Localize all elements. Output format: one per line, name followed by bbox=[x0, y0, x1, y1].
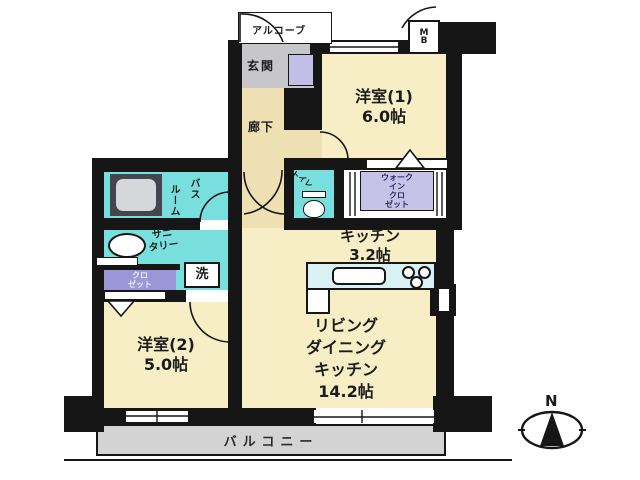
wall-right-upper bbox=[446, 40, 462, 230]
floor-plan: 洋室(1) 6.0帖 ウォーク イン クロ ゼット クロ ゼット 洋室(2) 5… bbox=[0, 0, 640, 480]
closet-line1: クロ bbox=[132, 271, 148, 280]
doorway-room2 bbox=[186, 290, 228, 302]
window-room1-top bbox=[330, 42, 398, 52]
room-western1: 洋室(1) 6.0帖 bbox=[322, 54, 446, 160]
walk-in-closet: ウォーク イン クロ ゼット bbox=[360, 171, 434, 211]
wic-line4: ゼット bbox=[385, 200, 409, 209]
kitchen-counter-return bbox=[306, 288, 330, 314]
bathtub-inner bbox=[116, 179, 156, 211]
alcove-label: アルコーブ bbox=[252, 22, 306, 37]
ldk-line4: 14.2帖 bbox=[318, 381, 373, 403]
pillar-bottom-right bbox=[433, 396, 492, 432]
balcony-floor: バルコニー bbox=[96, 424, 446, 456]
wall-left-column bbox=[228, 40, 242, 424]
kitchen-size: 3.2帖 bbox=[349, 246, 391, 265]
closet-line2: ゼット bbox=[128, 280, 152, 289]
meter-box: M B bbox=[408, 20, 440, 54]
wic-line3: クロ bbox=[389, 191, 405, 200]
closet-door-strip-room1 bbox=[366, 159, 448, 169]
balcony-label: バルコニー bbox=[224, 431, 319, 450]
wall-shoebox-back bbox=[284, 88, 314, 130]
room1-size: 6.0帖 bbox=[362, 107, 406, 127]
hallway-label: 廊下 bbox=[248, 118, 274, 135]
wall-room1-left bbox=[314, 44, 322, 130]
ldk-line3: キッチン bbox=[314, 359, 378, 381]
closet-room2: クロ ゼット bbox=[104, 270, 176, 290]
toilet-tank-icon bbox=[302, 191, 326, 198]
window-room2-balcony bbox=[126, 411, 188, 422]
sink-oval-icon bbox=[108, 233, 146, 258]
room2-size: 5.0帖 bbox=[144, 355, 188, 375]
kitchen-label: キッチン 3.2帖 bbox=[306, 228, 434, 264]
wall-ldk-bottom bbox=[238, 408, 316, 424]
ldk-line2: ダイニング bbox=[306, 337, 386, 359]
kitchen-name: キッチン bbox=[340, 227, 400, 246]
closet-door-strip-room2 bbox=[104, 291, 166, 300]
wall-vent-marker bbox=[96, 257, 138, 266]
toilet-bowl-icon bbox=[303, 200, 325, 218]
compass-north-label: N bbox=[545, 392, 558, 410]
compass-ellipse bbox=[522, 412, 582, 448]
wic-line1: ウォーク bbox=[381, 173, 413, 182]
balcony-outer-line bbox=[64, 459, 512, 461]
bath-label-col1: バス bbox=[186, 178, 201, 200]
wall-toilet-wic bbox=[334, 160, 344, 230]
room2-name: 洋室(2) bbox=[137, 335, 195, 355]
compass-icon bbox=[518, 412, 586, 448]
pillar-bottom-left bbox=[64, 396, 104, 432]
fridge-label-plate bbox=[438, 288, 450, 312]
room-western2: 洋室(2) 5.0帖 bbox=[104, 302, 228, 408]
wic-line2: イン bbox=[389, 182, 405, 191]
compass-needle bbox=[540, 412, 564, 446]
hallway-door-niche bbox=[284, 130, 322, 158]
ldk-line1: リビング bbox=[314, 315, 378, 337]
wall-bath-sanitary bbox=[96, 218, 200, 230]
window-ldk-balcony bbox=[314, 410, 434, 423]
washing-machine: 洗 bbox=[184, 262, 220, 288]
bath-label-col2: ルーム bbox=[166, 184, 181, 217]
washer-label: 洗 bbox=[195, 267, 208, 283]
room1-name: 洋室(1) bbox=[355, 87, 413, 107]
entrance-label: 玄関 bbox=[247, 57, 275, 74]
shoe-cabinet bbox=[288, 54, 314, 86]
ldk-label: リビング ダイニング キッチン 14.2帖 bbox=[258, 312, 434, 406]
sanitary-label: サニ タリー bbox=[146, 227, 179, 255]
stove-burner-icon-3 bbox=[410, 276, 423, 289]
meter-box-b: B bbox=[421, 37, 428, 45]
wall-bath-top bbox=[92, 158, 228, 172]
kitchen-sink-icon bbox=[332, 267, 386, 285]
hallway-floor bbox=[242, 88, 284, 228]
